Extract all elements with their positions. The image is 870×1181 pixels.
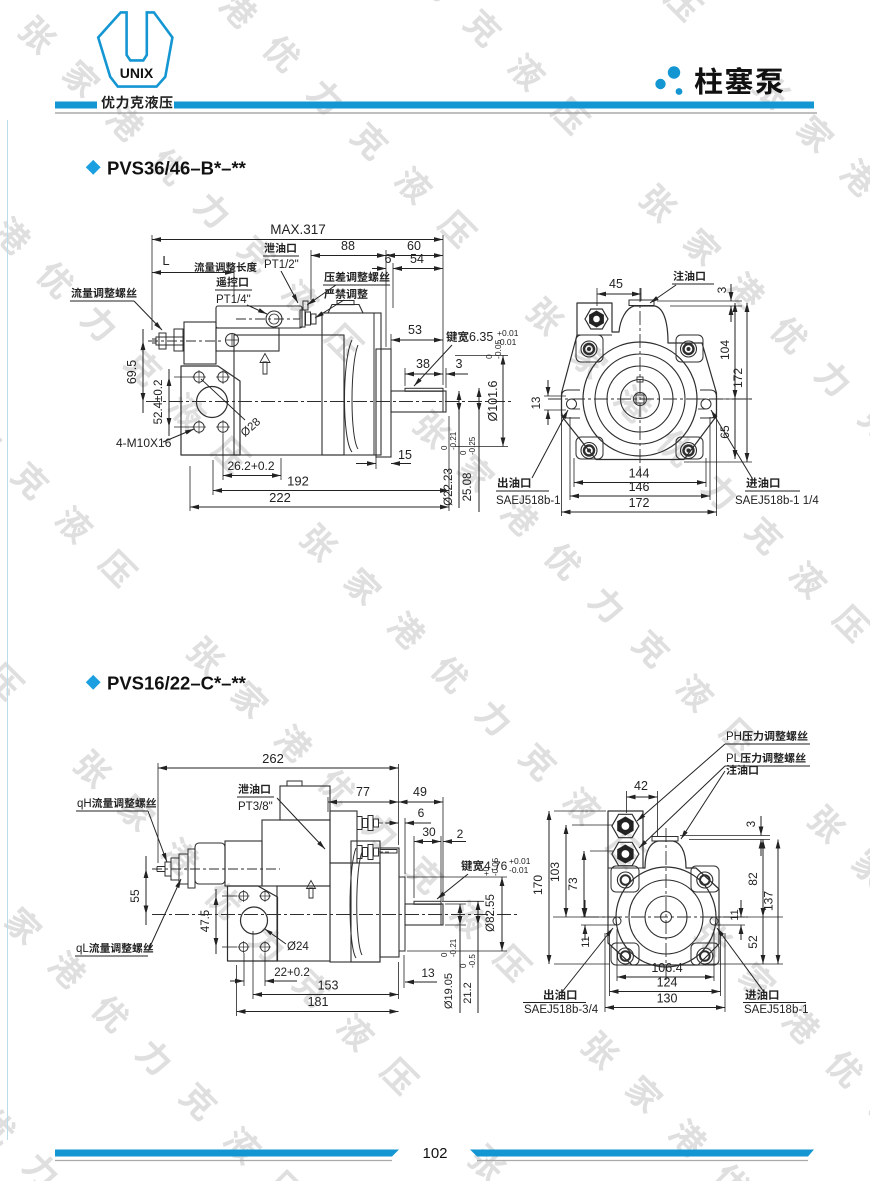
svg-text:13: 13 (421, 966, 435, 980)
svg-text:49: 49 (413, 785, 427, 799)
svg-text:146: 146 (629, 480, 650, 494)
svg-text:88: 88 (341, 239, 355, 253)
svg-text:6.35: 6.35 (469, 330, 493, 344)
svg-text:47.5: 47.5 (200, 910, 212, 932)
svg-text:Ø24: Ø24 (287, 941, 309, 953)
svg-text:103: 103 (548, 862, 562, 882)
svg-text:-0.21: -0.21 (449, 431, 458, 450)
svg-text:2: 2 (457, 827, 464, 841)
svg-text:38: 38 (416, 357, 430, 371)
svg-text:77: 77 (356, 785, 370, 799)
svg-text:262: 262 (262, 751, 284, 766)
svg-text:82: 82 (746, 872, 760, 886)
svg-text:30: 30 (422, 825, 436, 839)
svg-text:-0.05: -0.05 (493, 339, 503, 359)
svg-text:SAEJ518b-1 1/4: SAEJ518b-1 1/4 (735, 495, 819, 507)
svg-text:52: 52 (746, 935, 760, 949)
svg-text:54: 54 (410, 252, 424, 266)
svg-text:60: 60 (407, 239, 421, 253)
svg-text:UNIX: UNIX (120, 65, 154, 81)
svg-text:53: 53 (408, 323, 422, 337)
svg-text:21.2: 21.2 (462, 982, 474, 1003)
svg-text:PL: PL (726, 753, 741, 765)
svg-text:PVS16/22–C*–**: PVS16/22–C*–** (107, 673, 247, 694)
svg-text:6: 6 (418, 806, 425, 820)
svg-text:26.2+0.2: 26.2+0.2 (227, 459, 274, 473)
svg-text:0: 0 (440, 445, 449, 450)
svg-text:PVS36/46–B*–**: PVS36/46–B*–** (107, 158, 247, 179)
svg-text:Ø22.23: Ø22.23 (443, 468, 455, 506)
svg-text:106.4: 106.4 (651, 961, 682, 975)
svg-text:-0.5: -0.5 (468, 954, 477, 968)
svg-text:42: 42 (634, 779, 648, 793)
svg-text:3: 3 (746, 821, 758, 827)
svg-text:Ø82.55: Ø82.55 (485, 894, 497, 932)
svg-text:130: 130 (657, 992, 678, 1006)
svg-text:SAEJ518b-1: SAEJ518b-1 (496, 495, 561, 507)
svg-text:MAX.317: MAX.317 (270, 222, 326, 237)
svg-text:55: 55 (128, 889, 142, 903)
svg-text:13: 13 (531, 397, 543, 410)
svg-text:PT1/2": PT1/2" (264, 259, 299, 271)
svg-text:170: 170 (531, 875, 545, 895)
svg-text:25.08: 25.08 (462, 473, 474, 502)
svg-text:104: 104 (718, 340, 732, 360)
svg-text:-0.05: -0.05 (491, 857, 500, 876)
svg-text:153: 153 (318, 979, 339, 993)
svg-text:-0.21: -0.21 (449, 938, 458, 957)
svg-text:6: 6 (385, 252, 392, 266)
svg-text:3: 3 (456, 357, 463, 371)
svg-text:102: 102 (422, 1145, 447, 1162)
svg-text:11: 11 (580, 936, 592, 947)
svg-text:Ø28: Ø28 (239, 416, 263, 439)
svg-text:0: 0 (459, 963, 468, 968)
svg-text:-0.25: -0.25 (468, 436, 477, 455)
svg-text:124: 124 (657, 976, 678, 990)
svg-text:qH: qH (77, 798, 92, 810)
svg-text:qL: qL (76, 943, 89, 955)
svg-text:192: 192 (287, 474, 309, 489)
svg-text:15: 15 (398, 448, 412, 462)
svg-text:11: 11 (729, 909, 741, 920)
svg-text:222: 222 (269, 490, 291, 505)
svg-text:172: 172 (629, 496, 650, 510)
svg-text:4-M10X16: 4-M10X16 (116, 436, 172, 450)
svg-text:PT3/8": PT3/8" (238, 801, 273, 813)
svg-text:22+0.2: 22+0.2 (274, 967, 310, 979)
svg-text:73: 73 (566, 877, 580, 891)
svg-text:45: 45 (609, 277, 623, 291)
svg-text:172: 172 (731, 368, 745, 388)
svg-text:SAEJ518b-1: SAEJ518b-1 (744, 1004, 809, 1016)
svg-text:52.4±0.2: 52.4±0.2 (153, 380, 165, 425)
svg-text:Ø101.6: Ø101.6 (486, 380, 500, 421)
svg-text:PH: PH (726, 731, 742, 743)
svg-text:65: 65 (718, 425, 732, 439)
svg-text:137: 137 (762, 891, 776, 911)
svg-text:3: 3 (715, 286, 729, 293)
svg-text:181: 181 (308, 995, 329, 1009)
svg-text:SAEJ518b-3/4: SAEJ518b-3/4 (524, 1004, 599, 1016)
svg-text:69.5: 69.5 (125, 360, 139, 384)
svg-text:+0: +0 (482, 866, 491, 876)
svg-text:L: L (162, 253, 169, 268)
svg-text:PT1/4": PT1/4" (216, 294, 251, 306)
svg-text:0: 0 (459, 450, 468, 455)
svg-text:144: 144 (629, 467, 650, 481)
svg-text:0: 0 (440, 952, 449, 957)
svg-text:-0.01: -0.01 (509, 865, 529, 875)
svg-text:Ø19.05: Ø19.05 (443, 973, 455, 1009)
